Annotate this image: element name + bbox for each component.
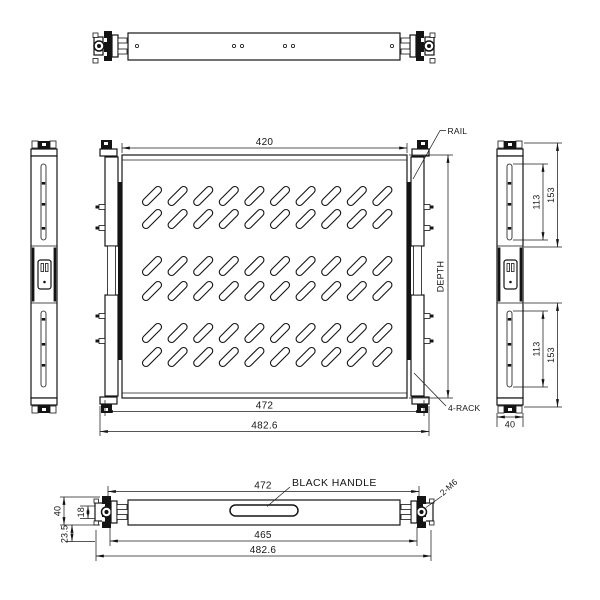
dim-handle-width-text: 465 [254,530,272,541]
dim-lower-section-text: 153 [546,347,556,363]
handle-slot [230,505,298,516]
dim-handle-offset-text: 18 [76,507,86,517]
rack-label: 4-RACK [448,403,481,413]
mount-hole [232,44,235,47]
rail-bottom-clamp [497,398,523,413]
end-bracket-left [94,496,127,528]
dim-rail-width-text: 472 [256,401,274,412]
dim-ear-depth-text: 23.5 [60,525,70,543]
dim-lower-slot-text: 113 [532,342,542,357]
rail-screw [96,339,106,344]
dim-height-text: 40 [53,506,63,516]
dim-top-width-text: 420 [256,137,274,148]
rail-screw [424,339,434,344]
rail-body [497,156,523,398]
technical-drawing: 113 153 113 153 40 [0,0,600,600]
main-view: 420 472 482.6 DEPTH RAIL 4-RACK [96,126,481,436]
rail-top-clamp [31,141,57,156]
rail-right [407,157,424,396]
rail-screw [96,205,106,210]
rail-left [105,157,122,396]
side-view-left [31,141,57,413]
side-view-right: 113 153 113 153 40 [497,141,562,430]
end-bracket-right [401,31,435,63]
handle-label: BLACK HANDLE [292,477,377,489]
end-bracket-right [401,496,434,528]
mount-hole [283,44,286,47]
front-view: 472 BLACK HANDLE 2-M6 465 482.6 40 18 23… [53,477,460,561]
dim-overall-width-text: 482.6 [251,421,278,432]
mount-hole [135,44,138,47]
rail-bottom-clamp [31,398,57,413]
dim-upper-section-text: 153 [546,187,556,203]
rail-screw [96,226,106,231]
dim-depth-text: DEPTH [436,261,446,293]
rail-body [31,156,57,398]
corner-clamp [100,140,117,156]
screw-label: 2-M6 [438,477,460,498]
dim-rail-width-text: 40 [505,420,515,430]
slide-bar [128,33,400,60]
dim-rail-width-text: 472 [254,481,272,492]
mount-hole [240,44,243,47]
rail-screw [424,205,434,210]
rail-screw [424,226,434,231]
rail-label: RAIL [448,126,468,136]
mount-hole [291,44,294,47]
corner-clamp [412,397,429,413]
end-bracket-left [93,31,127,63]
drawing-page: 113 153 113 153 40 [0,0,600,600]
corner-clamp [412,140,429,156]
rail-top-clamp [497,141,523,156]
top-view [93,31,435,63]
rail-screw [424,314,434,319]
dim-upper-slot-text: 113 [532,195,542,210]
screw-leader-line [426,496,442,508]
mount-hole [390,44,393,47]
rail-screw [96,314,106,319]
corner-clamp [100,397,117,413]
dim-overall-width-text: 482.6 [250,545,277,556]
